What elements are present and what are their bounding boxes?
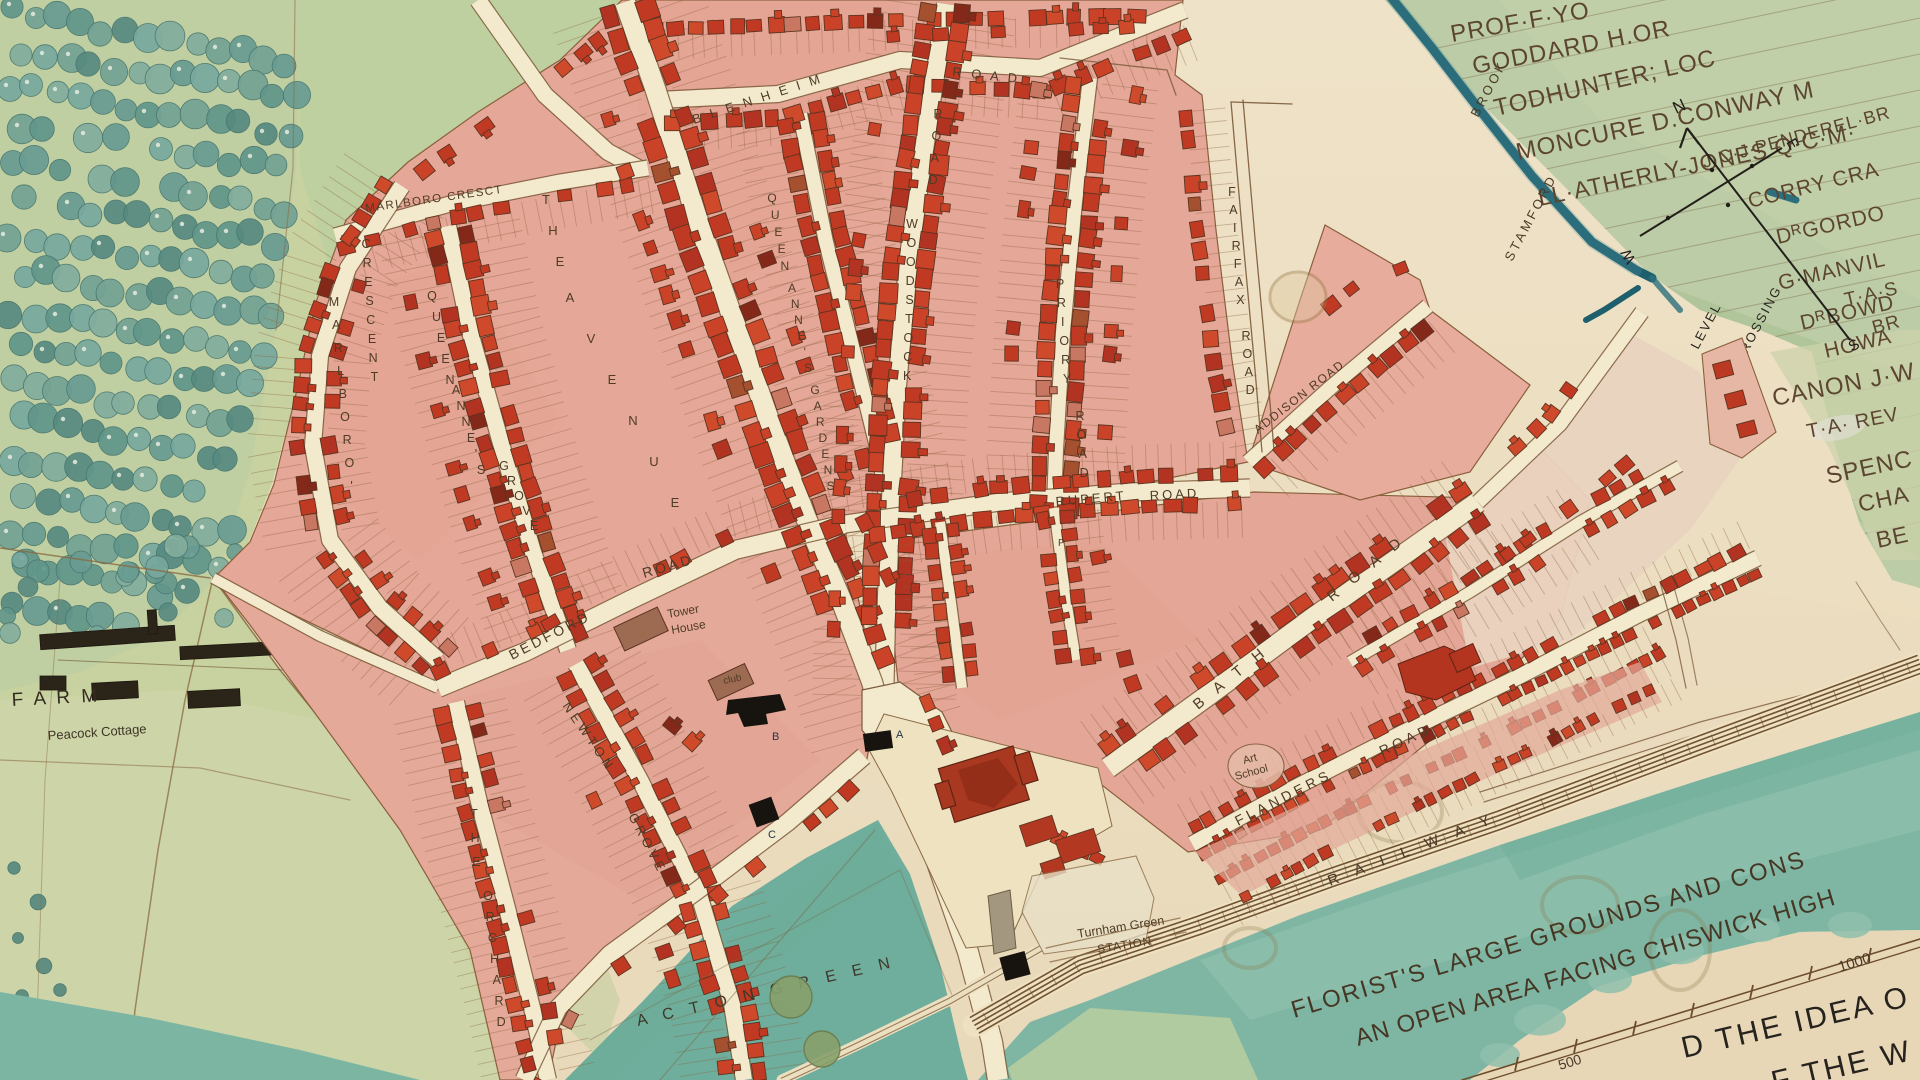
svg-text:N: N: [824, 463, 833, 477]
svg-text:R: R: [1061, 353, 1070, 367]
svg-text:M: M: [329, 295, 339, 309]
svg-text:V: V: [587, 331, 596, 346]
svg-text:S: S: [365, 294, 373, 308]
svg-text:A: A: [1245, 365, 1254, 379]
svg-text:E: E: [530, 519, 538, 533]
svg-text:N: N: [628, 413, 637, 428]
svg-text:K: K: [903, 369, 912, 383]
svg-text:ROAD: ROAD: [1149, 485, 1199, 503]
svg-text:E: E: [364, 275, 372, 289]
svg-text:O: O: [514, 489, 524, 503]
svg-text:E: E: [472, 855, 480, 869]
svg-text:A: A: [931, 151, 940, 165]
svg-text:R: R: [1075, 409, 1084, 423]
svg-text:A: A: [896, 729, 904, 741]
svg-text:A: A: [493, 973, 502, 987]
svg-text:R: R: [1232, 239, 1241, 253]
svg-text:A: A: [1235, 275, 1244, 289]
svg-text:S: S: [905, 293, 913, 307]
svg-text:R: R: [507, 474, 516, 488]
svg-text:Q: Q: [427, 289, 437, 303]
svg-text:R: R: [363, 256, 372, 270]
svg-text:C: C: [366, 313, 375, 327]
svg-text:O: O: [907, 236, 917, 250]
svg-text:V: V: [522, 504, 531, 518]
svg-text:A: A: [452, 383, 461, 397]
svg-text:Y: Y: [1063, 372, 1072, 386]
svg-text:A: A: [1079, 447, 1088, 461]
svg-text:O: O: [906, 255, 916, 269]
svg-text:N: N: [369, 351, 378, 365]
svg-text:H: H: [490, 952, 499, 966]
svg-text:E: E: [441, 352, 449, 366]
svg-text:S: S: [477, 463, 485, 477]
svg-text:O: O: [1077, 428, 1087, 442]
svg-text:E: E: [671, 495, 680, 510]
svg-text:D: D: [818, 431, 827, 445]
svg-text:A: A: [1229, 203, 1238, 217]
svg-text:G: G: [810, 383, 819, 397]
svg-text:T: T: [371, 370, 379, 384]
svg-text:O: O: [340, 410, 350, 424]
svg-text:H: H: [471, 831, 480, 845]
svg-text:B: B: [772, 731, 779, 743]
svg-text:O: O: [1243, 347, 1253, 361]
svg-text:P: P: [1058, 538, 1065, 549]
svg-text:C: C: [903, 350, 912, 364]
svg-text:Q: Q: [767, 191, 776, 205]
svg-text:R: R: [933, 107, 942, 121]
svg-text:E: E: [821, 447, 829, 461]
svg-text:D: D: [1080, 466, 1089, 480]
svg-text:R: R: [1241, 329, 1250, 343]
svg-text:X: X: [1236, 293, 1245, 307]
svg-text:P: P: [1056, 277, 1064, 291]
svg-text:I: I: [1233, 221, 1236, 235]
svg-text:E: E: [368, 332, 376, 346]
svg-text:A: A: [566, 290, 575, 305]
svg-text:A: A: [788, 281, 796, 295]
svg-text:F: F: [1228, 185, 1236, 199]
svg-text:': ': [804, 345, 806, 359]
svg-text:T: T: [905, 312, 913, 326]
svg-text:L: L: [337, 364, 344, 378]
svg-text:T: T: [470, 807, 478, 821]
svg-text:U: U: [649, 454, 658, 469]
svg-text:D: D: [929, 173, 938, 187]
svg-text:R: R: [343, 433, 352, 447]
svg-text:R: R: [1057, 296, 1066, 310]
svg-text:C: C: [488, 931, 497, 945]
svg-text:N: N: [461, 415, 470, 429]
svg-text:N: N: [794, 313, 803, 327]
svg-text:R: R: [816, 415, 825, 429]
svg-text:E: E: [774, 225, 782, 239]
svg-text:': ': [475, 447, 477, 461]
svg-text:D: D: [906, 274, 915, 288]
svg-text:E: E: [437, 331, 445, 345]
svg-text:E: E: [467, 431, 475, 445]
svg-text:O: O: [904, 331, 914, 345]
svg-text:E: E: [798, 329, 806, 343]
svg-text:N: N: [791, 297, 800, 311]
svg-text:A: A: [332, 318, 341, 332]
svg-text:U: U: [432, 310, 441, 324]
svg-text:G: G: [499, 459, 509, 473]
svg-text:T: T: [542, 192, 550, 207]
svg-text:H: H: [548, 223, 557, 238]
svg-text:B: B: [339, 387, 347, 401]
svg-text:U: U: [771, 208, 780, 222]
svg-text:W: W: [906, 217, 918, 231]
svg-text:N: N: [456, 399, 465, 413]
svg-text:O: O: [483, 889, 493, 903]
svg-text:R: R: [486, 910, 495, 924]
svg-text:D: D: [1246, 383, 1255, 397]
svg-text:E: E: [556, 254, 565, 269]
svg-text:S: S: [827, 479, 835, 493]
svg-text:I: I: [1061, 315, 1064, 329]
svg-text:F: F: [1234, 257, 1242, 271]
svg-text:O: O: [1059, 334, 1069, 348]
svg-text:C: C: [361, 237, 370, 251]
svg-text:O: O: [932, 129, 942, 143]
svg-text:S: S: [804, 361, 812, 375]
svg-text:O: O: [345, 456, 355, 470]
svg-text:R: R: [334, 341, 343, 355]
svg-text:E: E: [608, 372, 617, 387]
svg-text:E: E: [778, 242, 786, 256]
svg-text:C: C: [768, 829, 776, 841]
svg-text:A: A: [814, 399, 822, 413]
svg-text:D: D: [497, 1015, 506, 1029]
svg-text:N: N: [780, 259, 789, 273]
svg-text:': ': [350, 479, 352, 493]
svg-text:R: R: [494, 994, 503, 1008]
